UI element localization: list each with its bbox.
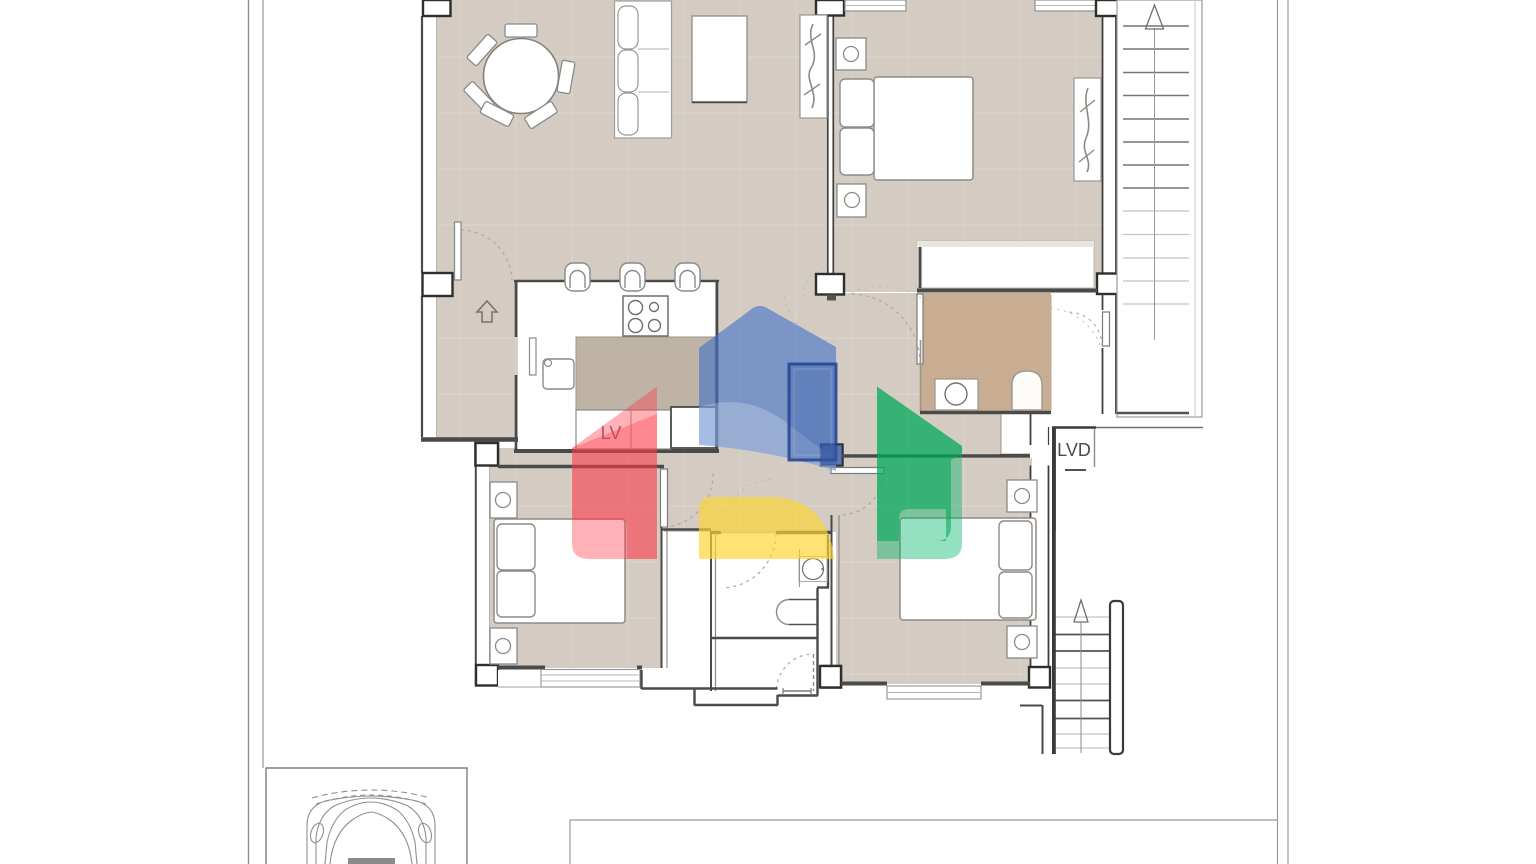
svg-text:LVD: LVD bbox=[1057, 440, 1091, 460]
